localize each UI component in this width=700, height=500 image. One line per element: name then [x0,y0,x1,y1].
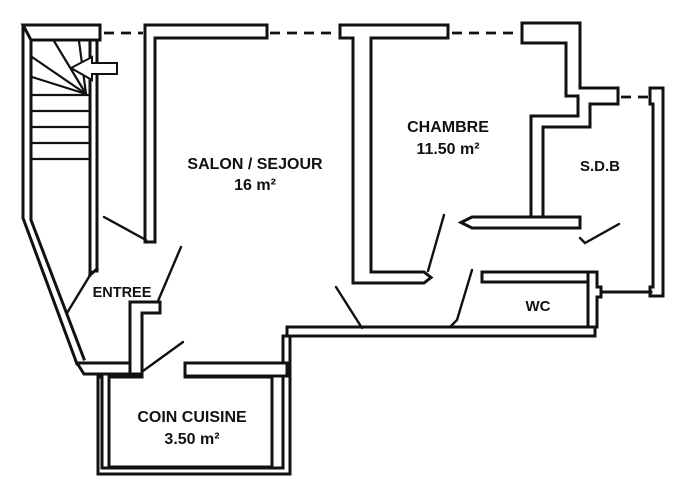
wall-right-exterior [650,88,663,296]
door-chambre [428,215,444,271]
entry-arrow-icon [71,57,117,80]
door-stairs [67,272,92,313]
room-label-entree: ENTREE [93,285,152,301]
door-entree-salon [104,217,146,240]
wall-wc-top [482,272,597,282]
room-label-salon: SALON / SEJOUR [187,156,323,173]
wall-sdb-stepped [522,23,618,221]
room-area-cuisine: 3.50 m² [164,431,219,448]
room-area-salon: 16 m² [234,177,276,194]
door-sdb [580,224,619,243]
stair-treads [32,41,89,159]
room-label-wc: WC [526,298,551,315]
room-area-chambre: 11.50 m² [416,141,479,158]
room-label-chambre: CHAMBRE [407,119,489,136]
wall-wc-right [588,272,601,327]
staircase [32,41,117,159]
room-label-cuisine: COIN CUISINE [137,409,247,426]
door-wc [451,270,472,326]
walls [23,23,663,474]
door-kitchen [143,342,183,371]
wall-kitchen-top [185,363,287,376]
floor-plan: SALON / SEJOUR 16 m² CHAMBRE 11.50 m² S.… [0,0,700,500]
door-entree-hall [158,247,181,301]
wall-sdb-bottom [461,217,580,228]
room-label-sdb: S.D.B [580,158,620,175]
wall-stairwell-top [23,25,100,40]
floor-plan-drawing: SALON / SEJOUR 16 m² CHAMBRE 11.50 m² S.… [0,0,700,500]
door-salon-corridor [336,287,362,328]
wall-salon [145,25,267,242]
